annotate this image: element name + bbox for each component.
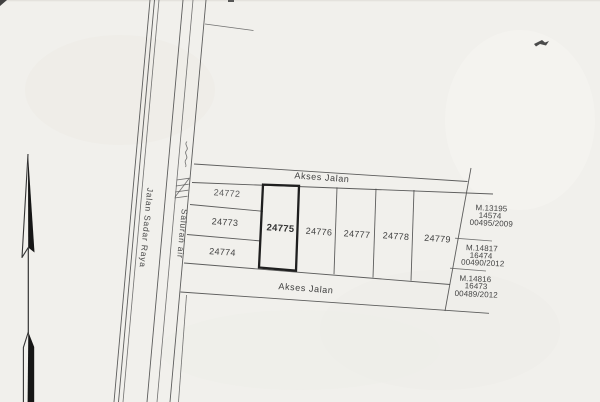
parcel-label-24772: 24772 bbox=[213, 187, 240, 199]
hatch-rung bbox=[175, 190, 188, 192]
parcel-divider bbox=[190, 205, 263, 212]
parcel-label-24778: 24778 bbox=[382, 230, 409, 242]
north-arrow-head-outline bbox=[22, 154, 28, 258]
paper-mottle bbox=[25, 35, 215, 145]
saluran-air-label: Saluran air bbox=[175, 208, 190, 259]
jalan-sadar-raya-label: Jalan Sadar Raya bbox=[138, 187, 156, 268]
certificate-2-line-3: 00490/2012 bbox=[461, 258, 505, 269]
hatch-rung bbox=[177, 178, 190, 180]
hatch-rung bbox=[175, 196, 188, 198]
parcel-divider bbox=[373, 189, 376, 278]
parcel-label-24776: 24776 bbox=[305, 226, 332, 238]
akses-jalan-bottom-label: Akses Jalan bbox=[278, 281, 334, 295]
site-plan-scan: Jalan Sadar Raya Saluran air Akses Jalan… bbox=[0, 0, 600, 402]
boundary-stub-line bbox=[205, 24, 254, 31]
parcel-divider bbox=[411, 190, 414, 281]
paper-mottle bbox=[445, 30, 595, 210]
parcel-divider bbox=[334, 187, 337, 274]
parcel-label-24773: 24773 bbox=[211, 216, 238, 228]
north-arrow-tail bbox=[28, 332, 35, 402]
paper-mottle bbox=[160, 310, 440, 390]
scan-artifacts bbox=[0, 0, 600, 390]
parcel-divider bbox=[187, 235, 261, 242]
akses-jalan-top-label: Akses Jalan bbox=[294, 170, 350, 184]
water-flow-squiggle bbox=[185, 142, 187, 168]
parcel-label-24779: 24779 bbox=[424, 233, 451, 245]
certificate-tick bbox=[455, 238, 492, 241]
parcel-label-24775: 24775 bbox=[266, 222, 295, 235]
site-plan-drawing: Jalan Sadar Raya Saluran air Akses Jalan… bbox=[0, 0, 600, 402]
hatch-rung bbox=[176, 184, 189, 186]
certificate-1-line-3: 00495/2009 bbox=[469, 218, 513, 229]
north-arrow-tail-outline bbox=[23, 332, 28, 402]
parcel-label-24777: 24777 bbox=[343, 228, 370, 240]
north-arrow-head bbox=[28, 154, 35, 253]
parcel-label-24774: 24774 bbox=[209, 246, 236, 258]
corner-smudge bbox=[0, 0, 7, 6]
edge-speck bbox=[228, 0, 234, 2]
north-arrow-icon bbox=[22, 154, 35, 402]
certificate-block-2: M.14817 16474 00490/2012 bbox=[461, 243, 506, 269]
certificate-3-line-3: 00489/2012 bbox=[454, 289, 498, 300]
